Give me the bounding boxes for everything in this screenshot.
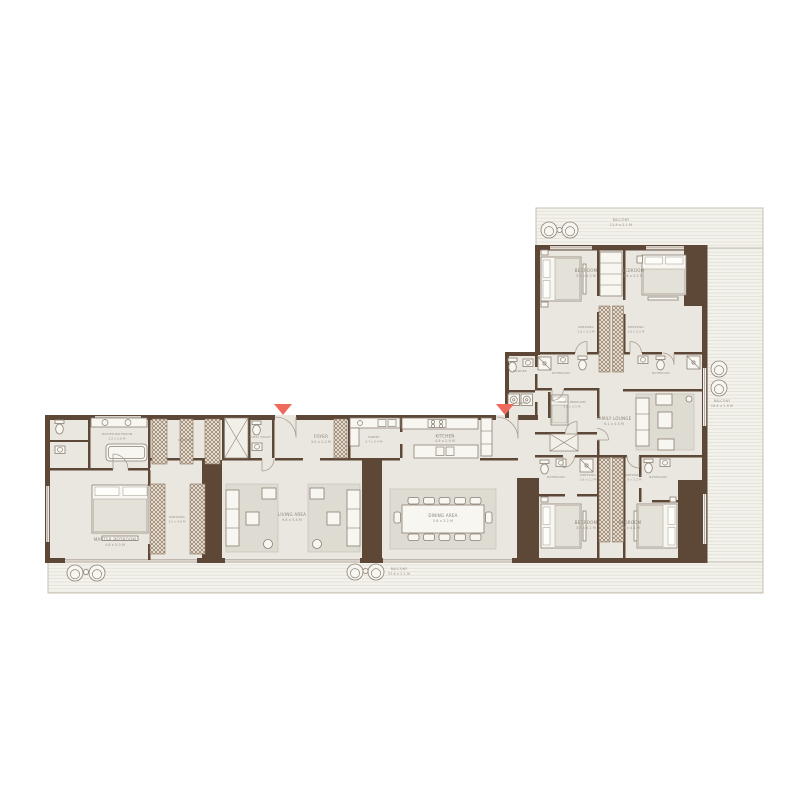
label-living-area: LIVING AREA [278,512,306,517]
balcony-chair [89,565,105,581]
wardrobe [150,484,165,554]
floor-plan-drawing: BALCONY 11.9 x 2.1 M BALCONY 16.4 x 1.9 … [0,0,800,800]
toilet [540,460,549,474]
label-guest-toilet: GUEST TOILET [249,435,271,439]
svg-text:3.6 x 4.2 M: 3.6 x 4.2 M [623,274,643,278]
label-pantry: PANTRY [368,435,380,439]
svg-text:11.9 x 2.1 M: 11.9 x 2.1 M [610,223,632,227]
svg-text:9.8 x 5.4 M: 9.8 x 5.4 M [282,518,302,522]
living-sofa-set [226,484,278,552]
toilet [644,459,653,473]
label-master-bathroom: MASTER BATHROOM [102,432,133,436]
label-laundry: LAUNDRY [513,401,527,405]
balcony-right [707,248,763,593]
nightstand [670,497,676,502]
label-dressing-c: DRESSING [580,473,596,477]
tall-units [481,418,492,456]
nightstand [541,497,548,502]
shaft [225,418,249,458]
bed [637,504,677,548]
label-balcony-right: BALCONY [714,399,731,403]
svg-text:3.5 x 4.6 M: 3.5 x 4.6 M [168,520,186,524]
svg-text:6.1 x 4.4 M: 6.1 x 4.4 M [604,422,624,426]
label-dressing-b: DRESSING [628,325,644,329]
balcony-chair [711,361,727,377]
family-lounge-sofa-set [636,394,694,450]
label-dressing-a: DRESSING [578,325,594,329]
shower [687,356,700,369]
wardrobe [613,306,624,372]
nightstand [541,302,548,307]
label-foyer: FOYER [314,434,328,439]
balcony-side-table [557,227,562,232]
wardrobe [190,484,205,554]
entry-arrow [274,404,292,415]
toilet [55,420,64,434]
label-dressing-walkin: DRESSING [178,438,194,442]
coat-closet [334,419,347,458]
balcony-chair [562,222,578,238]
svg-text:5.8 x 3.2 M: 5.8 x 3.2 M [433,519,453,523]
label-bedroom-c: BEDROOM [575,520,598,525]
toilet [656,356,665,370]
svg-text:3.5 x 4.1 M: 3.5 x 4.1 M [576,526,596,530]
label-bathroom-a: BATHROOM [552,371,570,375]
label-bathroom-d: BATHROOM [649,475,667,479]
svg-text:4.9 x 2.9 M: 4.9 x 2.9 M [435,439,455,443]
label-balcony-top: BALCONY [613,218,630,222]
label-family-lounge: FAMILY LOUNGE [597,416,632,421]
wardrobe [599,306,610,372]
living-sofa-set [308,484,360,552]
nightstand [637,256,643,263]
entry-arrows [274,404,514,415]
label-bedroom-d: BEDROOM [619,520,642,525]
bed [642,255,686,295]
basin [55,446,65,454]
basin [523,359,533,367]
master-bed [92,485,148,541]
balcony-side-table [83,569,88,574]
label-master-bedroom: MASTER BEDROOM [94,537,136,542]
wardrobe [152,419,167,464]
label-dressing-d: DRESSING [625,473,641,477]
closet-unit [600,252,622,296]
bed [541,257,581,301]
svg-text:4.8 x 5.0 M: 4.8 x 5.0 M [105,543,125,547]
label-dressing-master: DRESSING [169,515,185,519]
label-dining-area: DINING AREA [428,513,457,518]
balcony-chair [347,564,363,580]
label-balcony-bottom: BALCONY [391,567,408,571]
label-powder: POWDER [513,369,526,373]
label-maids-bedroom: MAID'S BEDROOM [558,400,586,404]
basin [252,443,262,451]
balcony-chair [541,222,557,238]
label-kitchen: KITCHEN [435,434,454,439]
svg-text:37.6 x 2.1 M: 37.6 x 2.1 M [388,572,410,576]
shower [538,357,551,370]
shaft [550,434,578,451]
label-bedroom-a: BEDROOM [575,268,598,273]
basin [638,356,648,364]
svg-text:3.0 x 2.4 M: 3.0 x 2.4 M [311,440,331,444]
svg-text:2.9 x 2.5 M: 2.9 x 2.5 M [563,405,581,409]
toilet [252,421,261,435]
label-bathroom-c: BATHROOM [547,475,565,479]
wardrobe [205,419,220,464]
label-bathroom-b: BATHROOM [652,371,670,375]
balcony-side-table [363,568,368,573]
basin [556,459,566,467]
svg-text:3.6 x 4.1 M: 3.6 x 4.1 M [620,526,640,530]
basin [660,459,670,467]
toilet [578,356,587,370]
svg-text:2.7 x 2.4 M: 2.7 x 2.4 M [365,440,383,444]
balcony-chair [368,564,384,580]
balcony-chair [711,380,727,396]
svg-text:16.4 x 1.9 M: 16.4 x 1.9 M [711,404,733,408]
shower [580,459,593,472]
bed-bench [648,297,678,300]
svg-text:1.6 x 2.2 M: 1.6 x 2.2 M [627,330,645,334]
basin [558,356,568,364]
floor-plan-page: BALCONY 11.9 x 2.1 M BALCONY 16.4 x 1.9 … [0,0,800,800]
column [362,460,382,558]
column [517,478,539,558]
svg-text:1.6 x 2.2 M: 1.6 x 2.2 M [577,330,595,334]
svg-text:3.5 x 4.2 M: 3.5 x 4.2 M [576,274,596,278]
wardrobe [599,458,610,542]
balcony-chair [67,565,83,581]
nightstand [541,250,548,255]
wardrobe-wall [684,250,702,306]
wardrobe-wall [678,480,702,558]
svg-text:1.6 x 2.2 M: 1.6 x 2.2 M [579,478,597,482]
svg-text:1.6 x 2.2 M: 1.6 x 2.2 M [624,478,642,482]
label-bedroom-b: BEDROOM [622,268,645,273]
svg-text:3.2 x 2.6 M: 3.2 x 2.6 M [108,437,126,441]
